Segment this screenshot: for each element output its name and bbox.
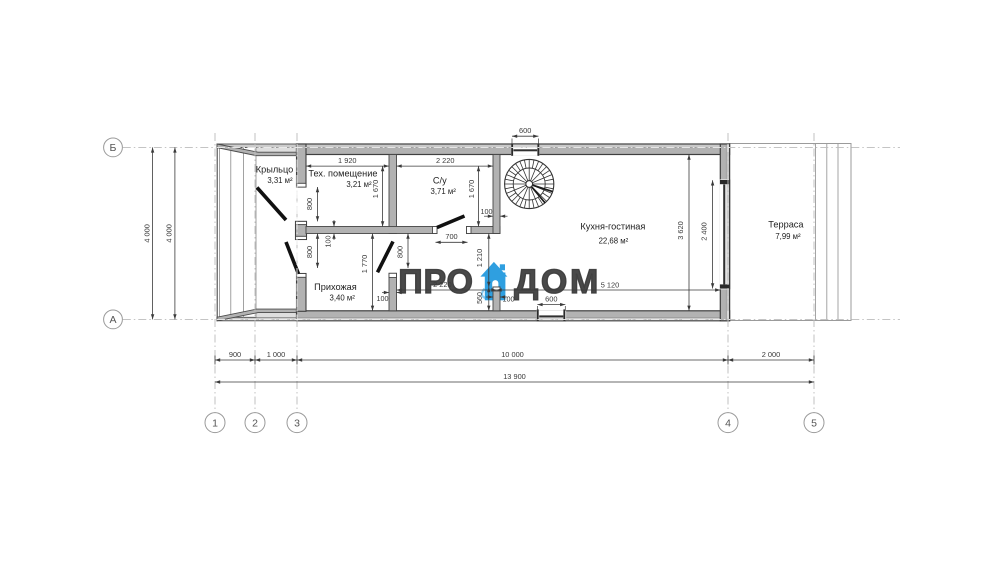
svg-text:1 000: 1 000 — [267, 350, 286, 359]
svg-text:3,21 м²: 3,21 м² — [346, 180, 372, 189]
svg-text:10 000: 10 000 — [501, 350, 524, 359]
svg-text:2 000: 2 000 — [762, 350, 781, 359]
svg-text:2 400: 2 400 — [699, 222, 708, 241]
svg-text:5 120: 5 120 — [601, 280, 620, 289]
svg-text:100: 100 — [503, 294, 515, 303]
svg-text:Б: Б — [110, 142, 117, 154]
svg-text:2 220: 2 220 — [436, 156, 455, 165]
svg-text:1 210: 1 210 — [475, 249, 484, 268]
svg-text:3,40 м²: 3,40 м² — [330, 293, 356, 302]
svg-text:7,99 м²: 7,99 м² — [775, 232, 801, 241]
svg-text:3,71 м²: 3,71 м² — [431, 187, 457, 196]
svg-text:800: 800 — [305, 198, 314, 210]
svg-text:С/у: С/у — [433, 176, 447, 186]
svg-text:1 670: 1 670 — [467, 180, 476, 199]
svg-text:100: 100 — [481, 207, 493, 216]
svg-text:А: А — [109, 314, 116, 326]
svg-text:3 620: 3 620 — [676, 221, 685, 240]
svg-text:1 920: 1 920 — [338, 156, 357, 165]
svg-text:13 900: 13 900 — [503, 372, 526, 381]
svg-text:Терраса: Терраса — [768, 220, 804, 230]
svg-text:100: 100 — [377, 294, 389, 303]
svg-text:1: 1 — [212, 417, 218, 429]
svg-text:1 670: 1 670 — [371, 180, 380, 199]
svg-text:5: 5 — [811, 417, 817, 429]
svg-text:Крыльцо: Крыльцо — [256, 165, 293, 175]
svg-text:800: 800 — [396, 246, 405, 258]
svg-text:3,31 м²: 3,31 м² — [267, 176, 293, 185]
svg-text:1 770: 1 770 — [360, 255, 369, 274]
svg-text:600: 600 — [545, 294, 557, 303]
svg-text:2 220: 2 220 — [433, 280, 452, 289]
svg-text:800: 800 — [305, 246, 314, 258]
svg-text:600: 600 — [519, 126, 531, 135]
svg-text:4 000: 4 000 — [165, 224, 174, 243]
svg-text:3: 3 — [294, 417, 300, 429]
svg-text:100: 100 — [323, 236, 332, 248]
svg-text:Тех. помещение: Тех. помещение — [308, 169, 377, 179]
svg-text:Кухня-гостиная: Кухня-гостиная — [580, 222, 645, 232]
svg-text:4: 4 — [725, 417, 731, 429]
svg-text:4 000: 4 000 — [142, 224, 151, 243]
svg-text:900: 900 — [229, 350, 241, 359]
svg-text:22,68 м²: 22,68 м² — [599, 236, 629, 245]
svg-text:700: 700 — [445, 232, 457, 241]
svg-text:Прихожая: Прихожая — [314, 282, 357, 292]
svg-text:560: 560 — [477, 292, 484, 304]
svg-text:2: 2 — [252, 417, 258, 429]
